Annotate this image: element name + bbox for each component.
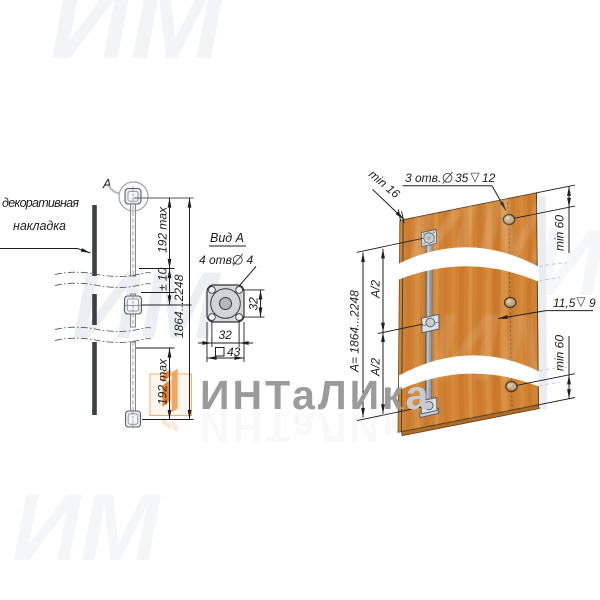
svg-text:ИНТаЛИка: ИНТаЛИка — [200, 404, 431, 450]
svg-text:43: 43 — [227, 345, 241, 359]
svg-text:ИМ: ИМ — [50, 0, 227, 82]
svg-text:3 отв.: 3 отв. — [405, 171, 441, 185]
svg-text:35: 35 — [455, 171, 469, 185]
svg-text:11,5: 11,5 — [553, 296, 576, 310]
svg-text:декоративная: декоративная — [2, 196, 79, 210]
svg-text:А/2: А/2 — [369, 280, 383, 299]
svg-text:накладка: накладка — [13, 219, 66, 233]
svg-text:1864...2248: 1864...2248 — [172, 274, 186, 338]
svg-text:32: 32 — [219, 328, 233, 342]
svg-text:9: 9 — [589, 296, 596, 310]
svg-text:4: 4 — [247, 253, 254, 267]
svg-text:32: 32 — [247, 297, 261, 311]
svg-text:Вид А: Вид А — [210, 231, 244, 245]
svg-text:ИМ: ИМ — [12, 475, 161, 581]
svg-text:12: 12 — [482, 171, 496, 185]
svg-text:192 max: 192 max — [156, 358, 170, 405]
svg-text:4 отв.: 4 отв. — [199, 253, 235, 267]
svg-text:min 60: min 60 — [553, 335, 567, 371]
svg-text:192 max: 192 max — [156, 206, 170, 253]
svg-text:А= 1864...2248: А= 1864...2248 — [348, 290, 362, 373]
svg-text:± 10: ± 10 — [156, 267, 170, 291]
svg-text:min 60: min 60 — [553, 215, 567, 251]
